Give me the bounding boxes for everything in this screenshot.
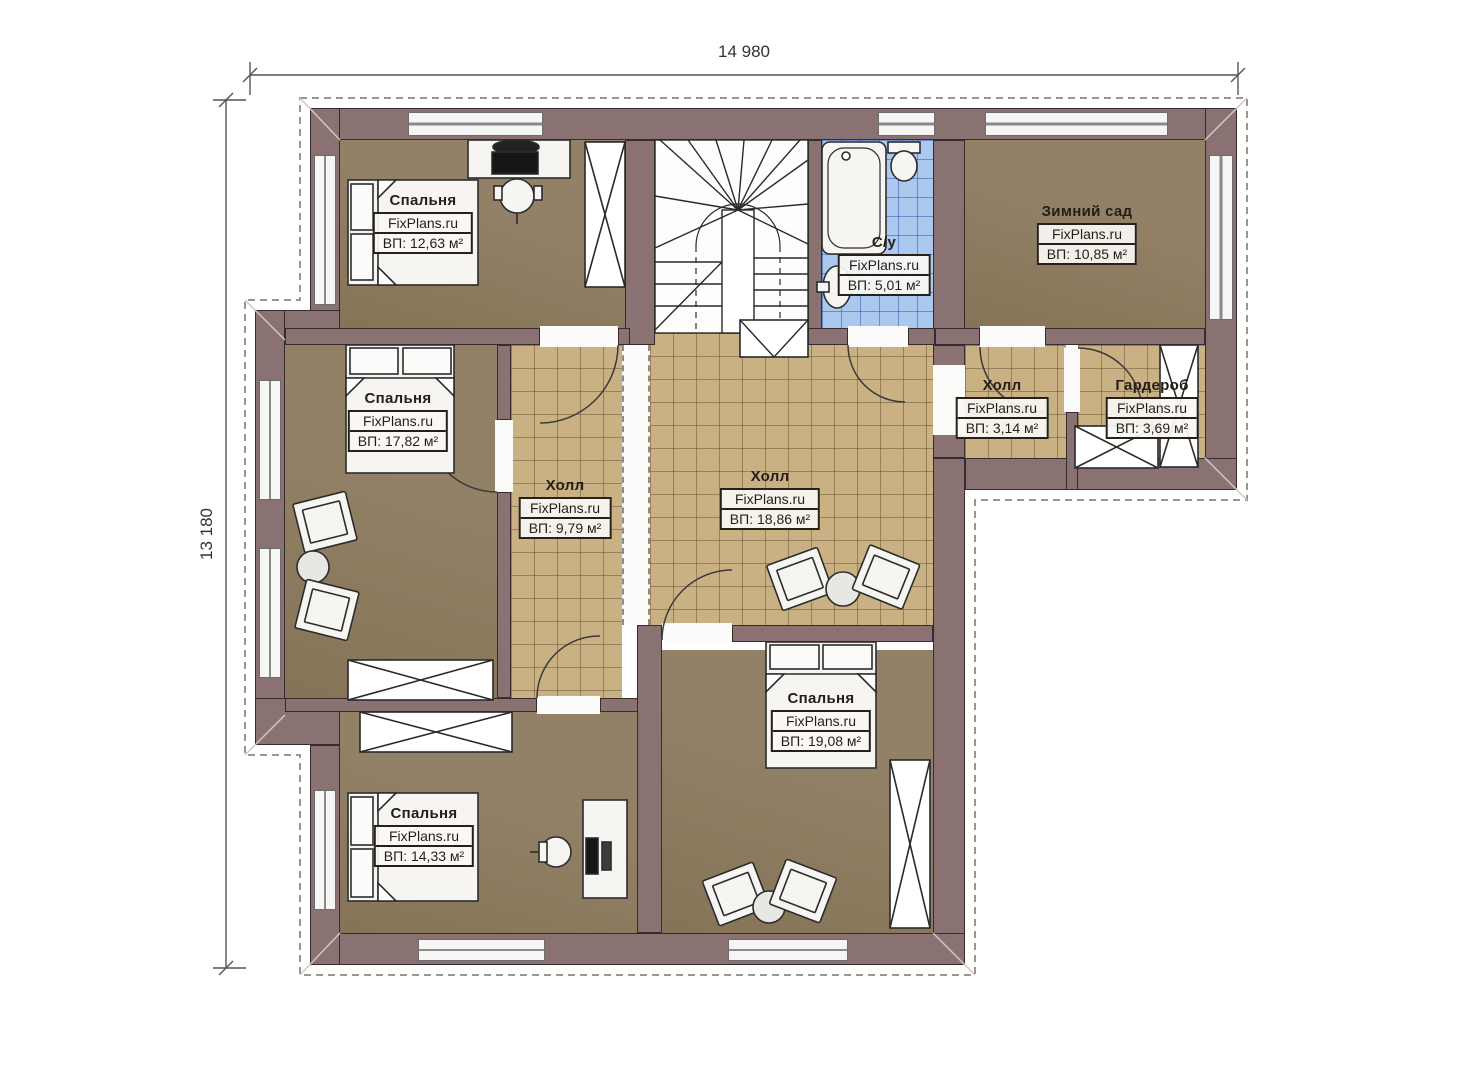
room-area: ВП: 14,33 м²: [376, 847, 472, 865]
window-left-upper: [314, 155, 336, 305]
room-label-hall-left: Холл FixPlans.ru ВП: 9,79 м²: [519, 477, 612, 539]
room-area: ВП: 19,08 м²: [773, 732, 869, 750]
room-area: ВП: 3,69 м²: [1108, 419, 1197, 437]
watermark: FixPlans.ru: [722, 490, 818, 510]
room-area: ВП: 3,14 м²: [958, 419, 1047, 437]
room-info-box: FixPlans.ru ВП: 5,01 м²: [838, 254, 931, 296]
window-bottom-bedroom-mid: [728, 939, 848, 961]
room-info-box: FixPlans.ru ВП: 14,33 м²: [374, 825, 474, 867]
window-left-lower: [314, 790, 336, 910]
watermark: FixPlans.ru: [376, 827, 472, 847]
room-label-bedroom-bottom-left: Спальня FixPlans.ru ВП: 14,33 м²: [374, 805, 474, 867]
room-label-bedroom-top-left: Спальня FixPlans.ru ВП: 12,63 м²: [373, 192, 473, 254]
wall-wintergarden-bottom-b: [1045, 328, 1205, 345]
watermark: FixPlans.ru: [1039, 225, 1135, 245]
window-bottom-bedroom-left: [418, 939, 545, 961]
wall-bathroom-bottom-b: [908, 328, 935, 345]
room-info-box: FixPlans.ru ВП: 3,69 м²: [1106, 397, 1199, 439]
room-name: Гардероб: [1106, 377, 1199, 394]
open-passage: [622, 345, 650, 625]
room-info-box: FixPlans.ru ВП: 3,14 м²: [956, 397, 1049, 439]
room-name: Спальня: [348, 390, 448, 407]
room-name: Холл: [956, 377, 1049, 394]
room-label-hall-center: Холл FixPlans.ru ВП: 18,86 м²: [720, 468, 820, 530]
wall-bathroom-bottom-a: [808, 328, 848, 345]
window-top-wintergarden: [985, 112, 1168, 136]
room-info-box: FixPlans.ru ВП: 9,79 м²: [519, 497, 612, 539]
watermark: FixPlans.ru: [773, 712, 869, 732]
watermark: FixPlans.ru: [1108, 399, 1197, 419]
room-label-bedroom-mid-left: Спальня FixPlans.ru ВП: 17,82 м²: [348, 390, 448, 452]
wall-bay-left: [255, 310, 285, 745]
door-opening-bedroom-tl: [540, 326, 618, 347]
dimension-width: 14 980: [250, 42, 1238, 62]
door-opening-bedroom-bl: [537, 696, 600, 714]
room-name: Спальня: [771, 690, 871, 707]
room-label-wardrobe: Гардероб FixPlans.ru ВП: 3,69 м²: [1106, 377, 1199, 439]
watermark: FixPlans.ru: [350, 412, 446, 432]
door-opening-bedroom-bm: [662, 623, 732, 642]
wall-outer-right-lower: [933, 458, 965, 965]
room-label-bathroom: С/у FixPlans.ru ВП: 5,01 м²: [838, 234, 931, 296]
room-info-box: FixPlans.ru ВП: 12,63 м²: [373, 212, 473, 254]
wall-bedroomml-hall-a: [497, 345, 511, 420]
wall-outer-bottom: [310, 933, 965, 965]
room-info-box: FixPlans.ru ВП: 17,82 м²: [348, 410, 448, 452]
wall-bedroombm-top: [732, 625, 933, 642]
floor-stairwell: [655, 140, 808, 333]
wall-outer-step: [965, 458, 1237, 490]
room-label-hall-small: Холл FixPlans.ru ВП: 3,14 м²: [956, 377, 1049, 439]
wall-bath-wintergarden: [933, 140, 965, 345]
room-info-box: FixPlans.ru ВП: 10,85 м²: [1037, 223, 1137, 265]
room-name: С/у: [838, 234, 931, 251]
door-opening-wardrobe: [1064, 348, 1080, 412]
floor-plan: 14 980 13 180 Спальня FixPlans.ru ВП: 12…: [0, 0, 1473, 1080]
watermark: FixPlans.ru: [375, 214, 471, 234]
wall-hallsmall-wardrobe: [1066, 412, 1078, 490]
dimension-depth: 13 180: [197, 499, 217, 569]
wall-bedrooms-left-divider-a: [285, 698, 537, 712]
wall-bedroom-tl-bottom-a: [285, 328, 540, 345]
room-info-box: FixPlans.ru ВП: 18,86 м²: [720, 488, 820, 530]
room-area: ВП: 12,63 м²: [375, 234, 471, 252]
room-name: Зимний сад: [1037, 203, 1137, 220]
wall-wintergarden-bottom-a: [935, 328, 980, 345]
room-name: Спальня: [374, 805, 474, 822]
wall-bedroom-tl-bottom-b: [618, 328, 630, 345]
wall-bedroomml-hall-b: [497, 492, 511, 698]
room-area: ВП: 10,85 м²: [1039, 245, 1135, 263]
room-label-bedroom-bottom-mid: Спальня FixPlans.ru ВП: 19,08 м²: [771, 690, 871, 752]
room-info-box: FixPlans.ru ВП: 19,08 м²: [771, 710, 871, 752]
room-name: Холл: [720, 468, 820, 485]
room-label-winter-garden: Зимний сад FixPlans.ru ВП: 10,85 м²: [1037, 203, 1137, 265]
room-area: ВП: 9,79 м²: [521, 519, 610, 537]
window-right-wintergarden: [1209, 155, 1233, 320]
door-opening-wintergarden: [980, 326, 1045, 347]
window-top-bathroom: [878, 112, 935, 136]
watermark: FixPlans.ru: [521, 499, 610, 519]
wall-stairs-left: [625, 140, 655, 345]
room-area: ВП: 17,82 м²: [350, 432, 446, 450]
window-bay-lower: [259, 548, 281, 678]
window-top-bedroom: [408, 112, 543, 136]
room-name: Спальня: [373, 192, 473, 209]
window-bay-upper: [259, 380, 281, 500]
door-opening-bathroom: [848, 326, 908, 347]
room-area: ВП: 18,86 м²: [722, 510, 818, 528]
room-name: Холл: [519, 477, 612, 494]
watermark: FixPlans.ru: [958, 399, 1047, 419]
wall-bedroombm-left: [637, 625, 662, 933]
wall-stairs-right: [808, 140, 822, 345]
door-opening-bedroom-ml: [495, 420, 513, 492]
room-area: ВП: 5,01 м²: [840, 276, 929, 294]
watermark: FixPlans.ru: [840, 256, 929, 276]
